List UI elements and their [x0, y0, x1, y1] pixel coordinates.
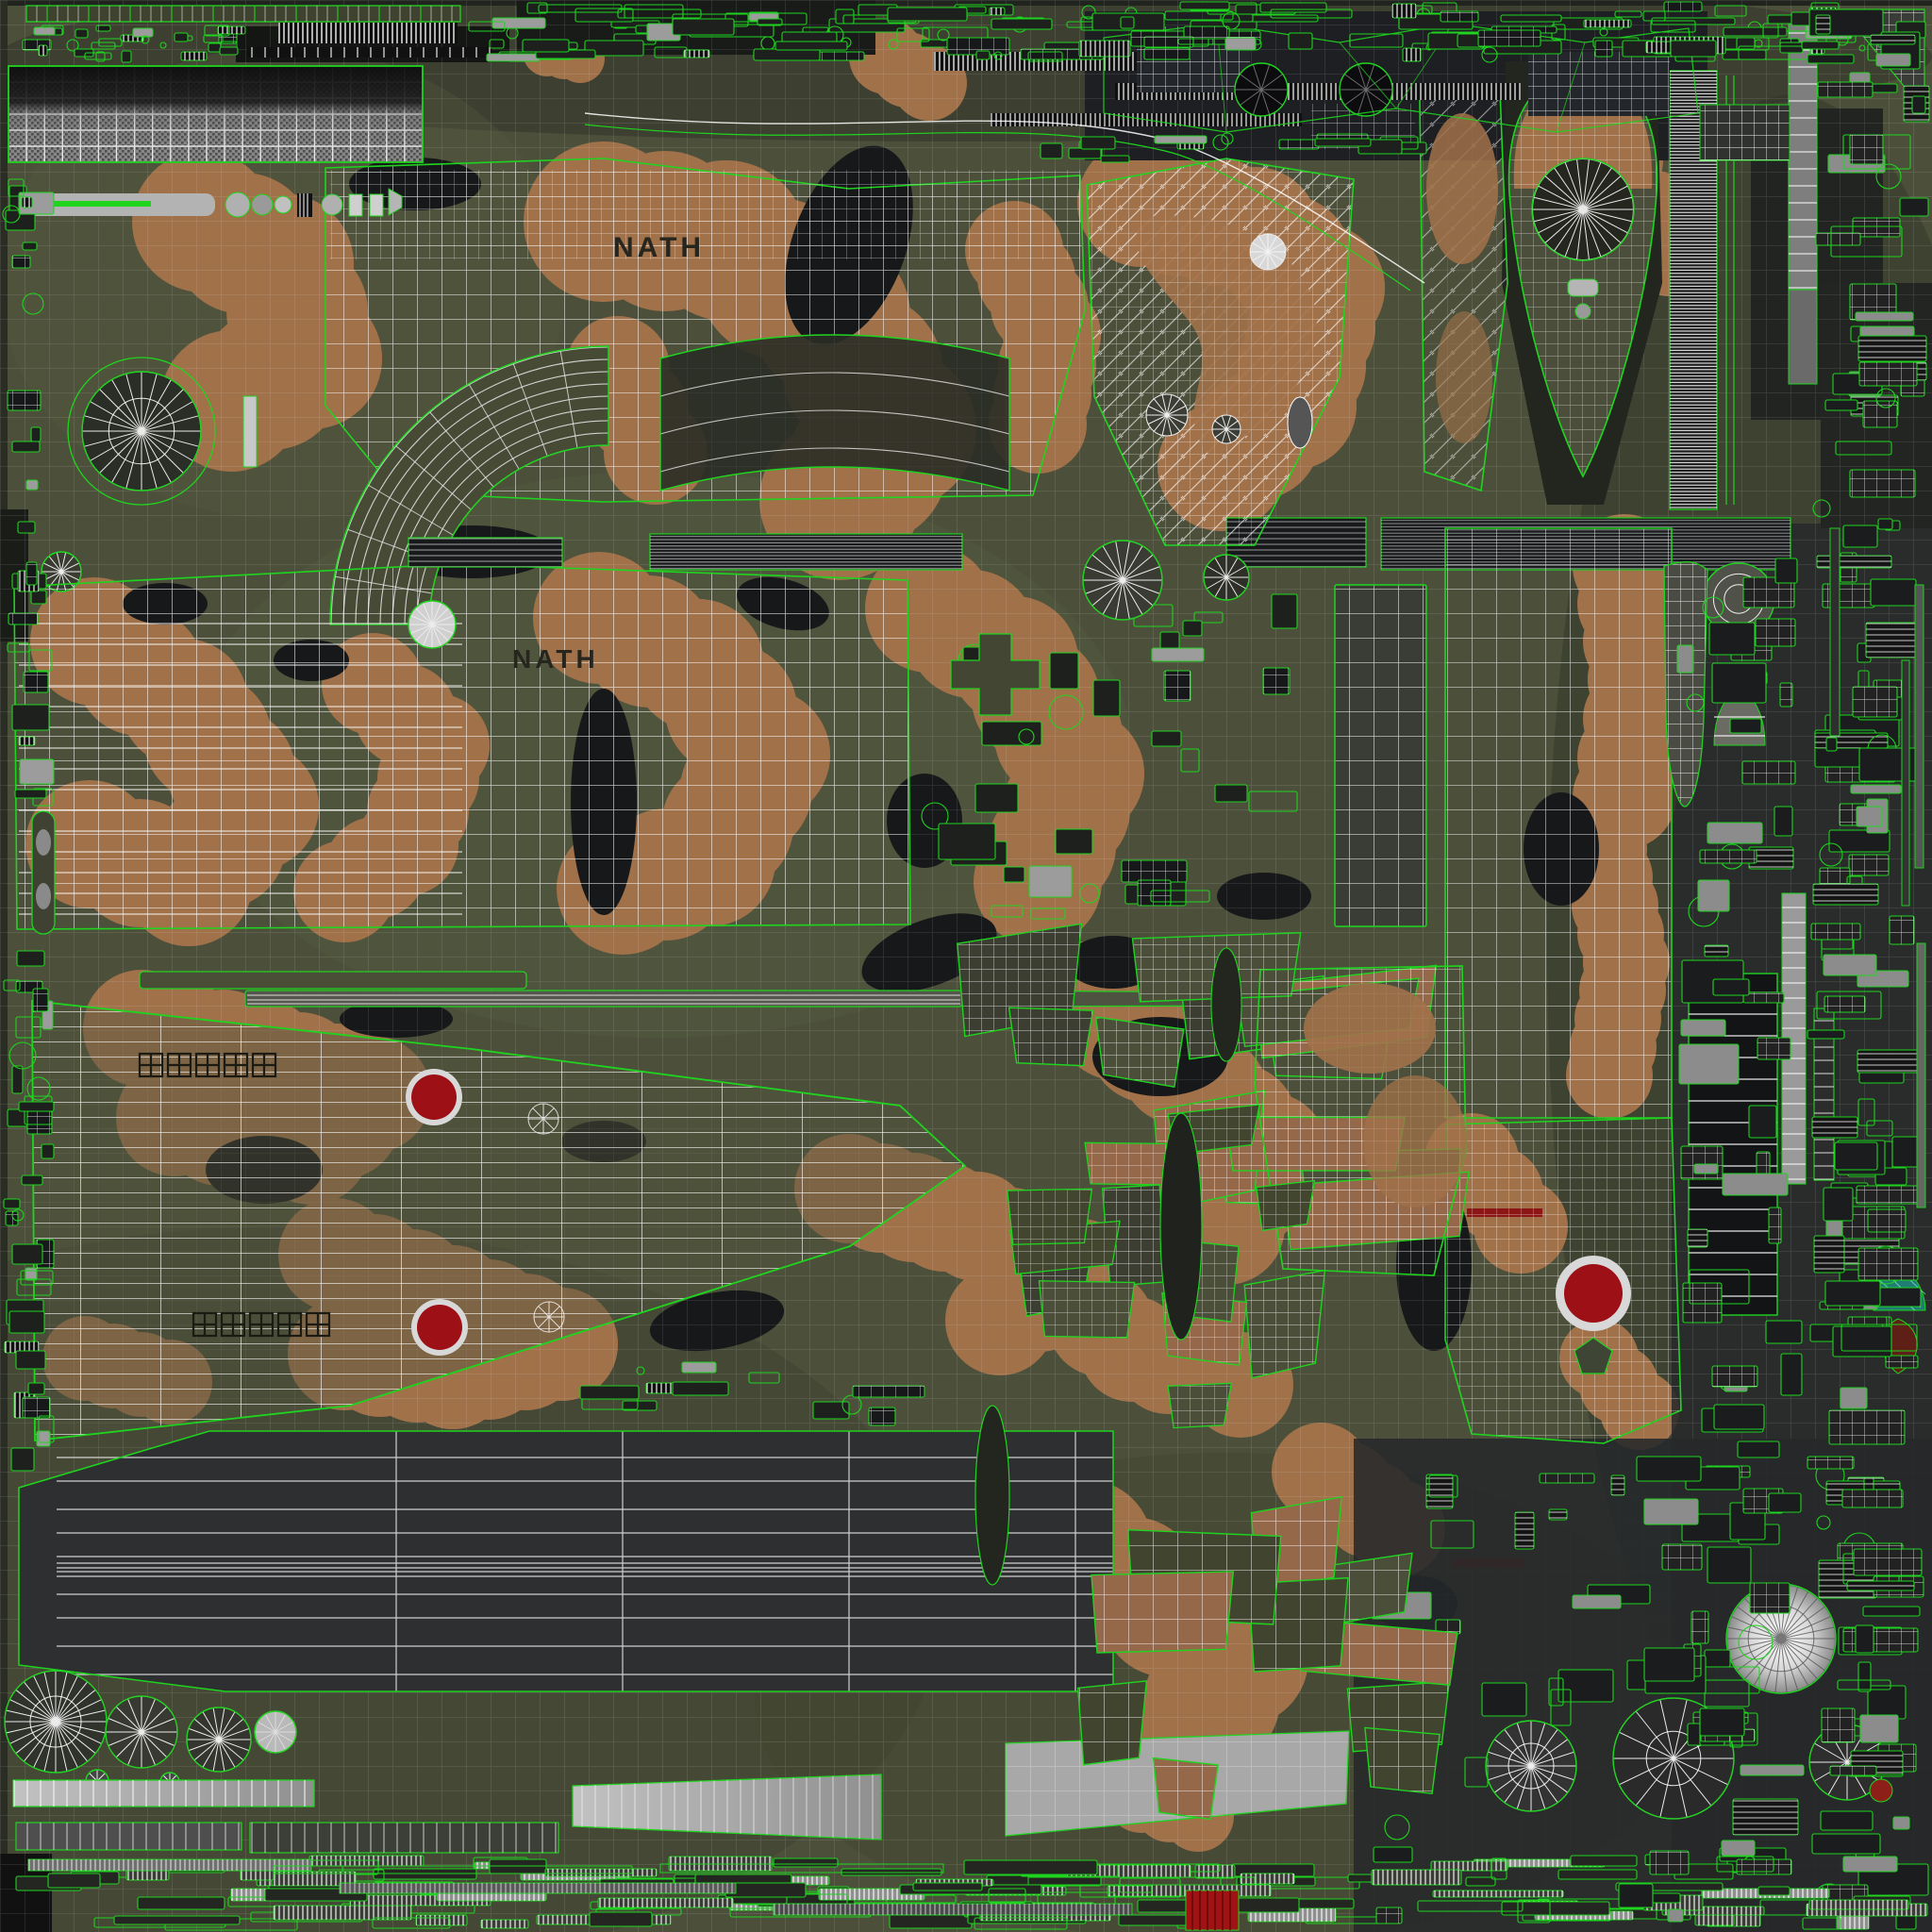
svg-text:NATH: NATH	[512, 644, 599, 674]
svg-text:NATH: NATH	[613, 232, 705, 263]
